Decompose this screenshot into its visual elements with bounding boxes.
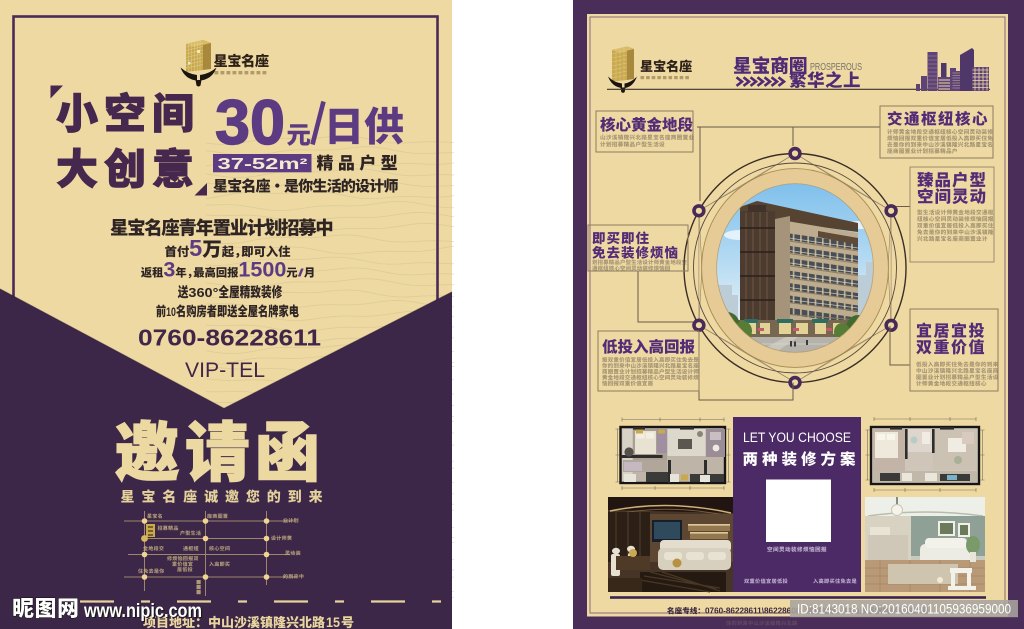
svg-text:VIP-TEL: VIP-TEL (185, 358, 265, 382)
svg-text:PROSPEROUS: PROSPEROUS (810, 61, 862, 73)
svg-text:10: 10 (166, 305, 176, 319)
svg-text:/: / (298, 268, 304, 280)
svg-text:5: 5 (189, 235, 202, 261)
svg-text:www.nipic.com: www.nipic.com (83, 600, 202, 622)
svg-text:360°: 360° (188, 285, 218, 300)
svg-text:ID:8143018 NO:2016040110593695: ID:8143018 NO:20160401105936959000 (797, 602, 1011, 617)
svg-text:37-52m²: 37-52m² (218, 156, 308, 173)
svg-text:15: 15 (326, 615, 340, 629)
svg-text:LET YOU CHOOSE: LET YOU CHOOSE (743, 430, 851, 445)
svg-text:0760-86228611\86228600: 0760-86228611\86228600 (705, 606, 801, 616)
svg-text:3: 3 (163, 259, 175, 282)
svg-text:1500: 1500 (238, 259, 286, 282)
svg-text:30: 30 (215, 88, 285, 158)
svg-text:0760-86228611: 0760-86228611 (138, 325, 321, 351)
